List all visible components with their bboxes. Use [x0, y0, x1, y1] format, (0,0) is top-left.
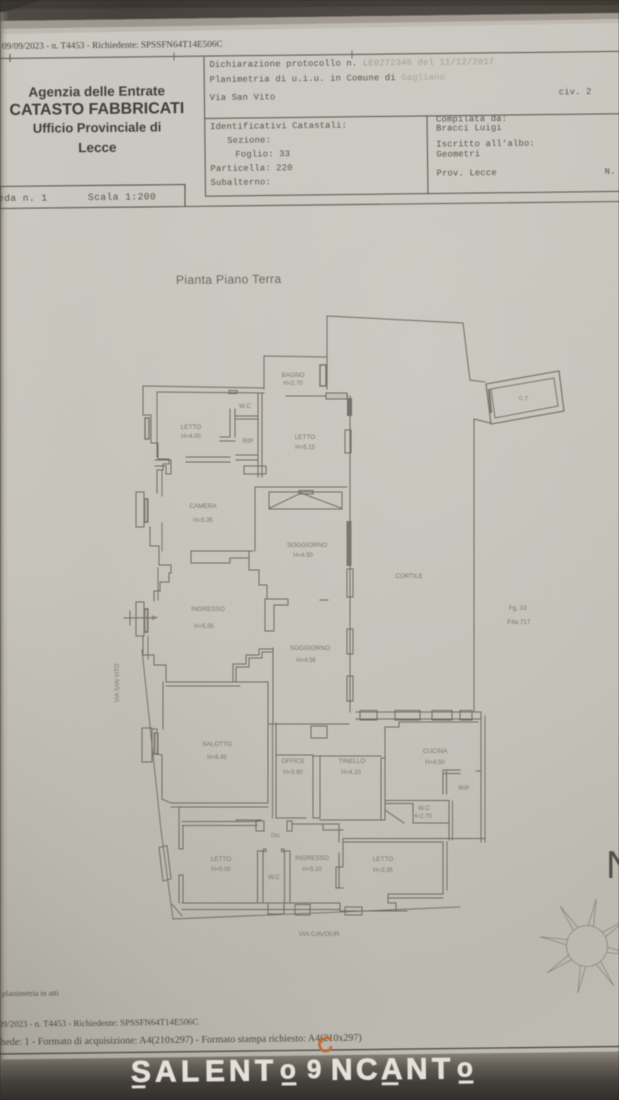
svg-text:RIP: RIP — [459, 785, 470, 792]
svg-text:T: T — [255, 1054, 274, 1087]
svg-text:Pianta Piano Terra: Pianta Piano Terra — [176, 272, 282, 287]
svg-text:Sezione:: Sezione: — [227, 135, 271, 145]
svg-text:T: T — [432, 1053, 451, 1086]
svg-text:CAMERA: CAMERA — [189, 503, 217, 510]
svg-text:o: o — [457, 1052, 473, 1082]
svg-text:planimetria in atti: planimetria in atti — [2, 988, 60, 998]
svg-text:H=3.60: H=3.60 — [283, 770, 303, 776]
svg-text:CORTILE: CORTILE — [395, 573, 423, 580]
svg-text:Fg. 33: Fg. 33 — [509, 605, 527, 612]
svg-text:SALOTTO: SALOTTO — [202, 741, 232, 748]
svg-text:eda n. 1: eda n. 1 — [0, 193, 48, 205]
svg-text:Agenzia delle Entrate: Agenzia delle Entrate — [28, 83, 165, 99]
svg-text:SOGGIORNO: SOGGIORNO — [287, 542, 327, 549]
svg-text:Geometri: Geometri — [436, 149, 480, 159]
svg-text:9: 9 — [307, 1054, 322, 1084]
svg-text:INGRESSO: INGRESSO — [295, 855, 329, 862]
svg-text:N: N — [606, 844, 619, 887]
svg-text:Ufficio Provinciale di: Ufficio Provinciale di — [33, 119, 162, 135]
svg-text:H=5.00: H=5.00 — [211, 867, 231, 873]
svg-text:N: N — [229, 1055, 251, 1088]
svg-text:H=5.10: H=5.10 — [302, 867, 322, 873]
svg-text:o: o — [280, 1054, 296, 1084]
svg-text:Iscritto all'albo:: Iscritto all'albo: — [436, 139, 535, 150]
svg-text:Bracci Luigi: Bracci Luigi — [436, 123, 502, 134]
svg-text:N.: N. — [605, 167, 616, 177]
svg-text:Particella: 220: Particella: 220 — [210, 163, 292, 174]
svg-text:C: C — [356, 1053, 378, 1086]
svg-text:W.C: W.C — [418, 805, 430, 812]
svg-text:A: A — [381, 1053, 403, 1086]
svg-text:Scala 1:200: Scala 1:200 — [88, 191, 156, 203]
svg-text:Subalterno:: Subalterno: — [211, 177, 271, 188]
svg-text:H=4.50: H=4.50 — [293, 553, 313, 559]
svg-text:H=4.56: H=4.56 — [296, 658, 316, 664]
svg-text:Prov. Lecce: Prov. Lecce — [437, 168, 497, 179]
svg-text:Foglio: 33: Foglio: 33 — [235, 149, 290, 160]
svg-text:S: S — [131, 1056, 151, 1089]
svg-text:H=3.35: H=3.35 — [373, 868, 393, 874]
svg-text:H=2.70: H=2.70 — [412, 814, 432, 820]
svg-text:H=5.15: H=5.15 — [295, 445, 315, 451]
svg-text:RIP: RIP — [243, 438, 254, 445]
svg-text:Via San Vito: Via San Vito — [210, 92, 276, 103]
svg-text:TINELLO: TINELLO — [339, 758, 366, 765]
svg-text:W.C: W.C — [239, 403, 251, 410]
svg-text:P.lla 717: P.lla 717 — [507, 619, 531, 626]
svg-text:Lecce: Lecce — [78, 140, 117, 155]
svg-text:Identificativi Catastali:: Identificativi Catastali: — [210, 121, 347, 132]
svg-text:Dis.: Dis. — [271, 833, 281, 839]
svg-text:LETTO: LETTO — [295, 434, 316, 441]
svg-text:OFFICE: OFFICE — [281, 758, 304, 765]
svg-text:LETTO: LETTO — [211, 856, 232, 863]
svg-text:SOGGIORNO: SOGGIORNO — [290, 645, 330, 652]
svg-text:N: N — [406, 1053, 428, 1086]
svg-text:H=5.55: H=5.55 — [194, 624, 214, 630]
svg-text:L: L — [181, 1055, 200, 1088]
svg-text:A: A — [155, 1055, 177, 1088]
svg-text:N: N — [331, 1054, 353, 1087]
svg-text:H=4.20: H=4.20 — [341, 770, 361, 776]
svg-text:CUCINA: CUCINA — [423, 748, 448, 755]
svg-text:H=4.00: H=4.00 — [181, 434, 201, 440]
svg-text:C.T.: C.T. — [519, 396, 530, 402]
svg-text:LETTO: LETTO — [373, 856, 394, 863]
svg-text:H=4.50: H=4.50 — [425, 760, 445, 766]
svg-text:INGRESSO: INGRESSO — [191, 606, 225, 613]
svg-text:H=2.70: H=2.70 — [283, 381, 303, 387]
svg-text:W.C: W.C — [268, 874, 280, 881]
svg-text:VIA CAVOUR: VIA CAVOUR — [298, 931, 339, 938]
svg-text:civ. 2: civ. 2 — [559, 87, 592, 97]
svg-text:H=6.45: H=6.45 — [207, 755, 227, 761]
svg-text:H=5.35: H=5.35 — [193, 518, 213, 524]
svg-text:E: E — [205, 1055, 225, 1088]
svg-text:VIA SAN VITO: VIA SAN VITO — [115, 663, 121, 702]
svg-text:BAGNO: BAGNO — [281, 372, 304, 379]
svg-text:CATASTO FABBRICATI: CATASTO FABBRICATI — [9, 100, 184, 119]
svg-text:LETTO: LETTO — [181, 424, 202, 431]
